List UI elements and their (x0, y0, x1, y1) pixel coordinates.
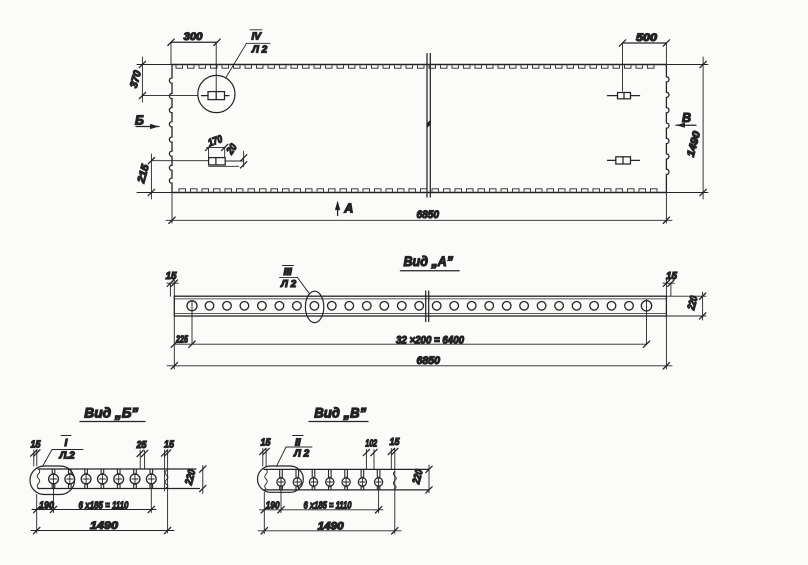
svg-text:6 x185 = 1110: 6 x185 = 1110 (304, 500, 352, 512)
svg-text:170: 170 (206, 133, 224, 149)
svg-text:А: А (343, 202, 353, 216)
svg-text:225: 225 (175, 334, 188, 346)
svg-text:300: 300 (184, 31, 204, 43)
svg-text:190: 190 (39, 499, 54, 511)
svg-text:15: 15 (261, 437, 271, 449)
svg-text:220: 220 (685, 295, 700, 313)
svg-text:1490: 1490 (685, 130, 703, 158)
svg-text:15: 15 (164, 438, 174, 450)
svg-text:Вид „А”: Вид „А” (404, 253, 454, 269)
svg-text:370: 370 (128, 69, 144, 89)
svg-text:Л 2: Л 2 (280, 279, 297, 290)
svg-text:Б: Б (135, 114, 144, 128)
svg-text:В: В (682, 111, 691, 125)
svg-text:Л.2: Л.2 (59, 450, 76, 461)
svg-text:15: 15 (31, 438, 41, 450)
svg-text:IV: IV (252, 32, 263, 43)
svg-text:I: I (65, 438, 68, 449)
svg-text:32 ×200 = 6400: 32 ×200 = 6400 (396, 334, 465, 346)
svg-text:20: 20 (224, 142, 240, 158)
svg-text:190: 190 (266, 500, 280, 512)
svg-text:Вид „Б”: Вид „Б” (84, 404, 138, 420)
svg-text:Л 2: Л 2 (251, 45, 268, 56)
svg-text:500: 500 (636, 32, 658, 44)
svg-text:15: 15 (666, 270, 677, 282)
svg-text:6 x185 = 1110: 6 x185 = 1110 (79, 499, 129, 511)
svg-text:Вид „В”: Вид „В” (314, 405, 366, 421)
svg-text:6850: 6850 (417, 209, 440, 221)
svg-text:Л 2: Л 2 (293, 449, 310, 460)
svg-text:102: 102 (365, 438, 377, 450)
svg-text:15: 15 (390, 436, 400, 448)
svg-text:220: 220 (183, 468, 199, 487)
svg-text:215: 215 (135, 163, 152, 185)
svg-text:220: 220 (410, 468, 426, 486)
svg-text:6850: 6850 (417, 355, 441, 367)
svg-text:III: III (284, 267, 293, 278)
svg-text:1490: 1490 (318, 520, 345, 532)
svg-text:15: 15 (166, 270, 177, 282)
svg-text:1490: 1490 (90, 520, 119, 532)
svg-text:25: 25 (136, 439, 147, 451)
